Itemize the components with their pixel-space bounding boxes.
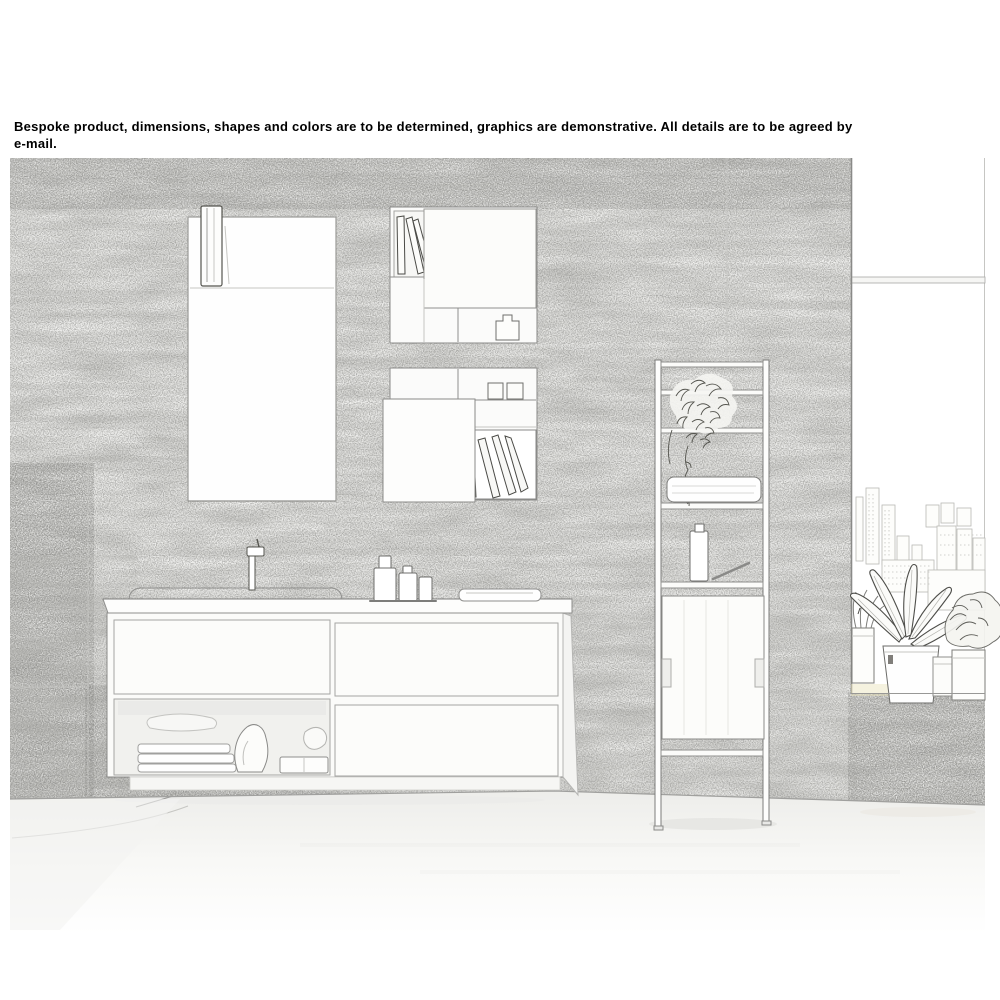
drawer-top-right (335, 623, 558, 696)
big-plant-pot (883, 646, 939, 703)
window-mullion (851, 277, 985, 283)
crumpled-towel-2 (304, 727, 327, 749)
box-shelf-lower (383, 368, 537, 502)
plants-floor-shadow (860, 807, 976, 817)
shelf-upper-door (424, 209, 536, 308)
open-shelf (114, 699, 330, 775)
drawer-bottom-right (335, 705, 558, 776)
listing-image: Bespoke product, dimensions, shapes and … (0, 0, 1000, 1000)
shelf-lower-box-2 (507, 383, 523, 399)
panel-notch-left (662, 659, 671, 687)
ladder-foot-right (762, 821, 771, 825)
ladder-towel (667, 477, 761, 502)
shelf-box (280, 757, 328, 773)
wall-mirror (188, 200, 336, 501)
panel-notch-right (755, 659, 764, 687)
counter-tray (459, 589, 541, 601)
box-shelf-upper (390, 207, 537, 343)
ladder-floor-shadow (649, 818, 777, 830)
shelf-lower-box-1 (488, 383, 503, 399)
plinth (130, 777, 560, 790)
open-shelf-shadow (118, 701, 326, 715)
drawer-top-left (114, 620, 330, 694)
window-city-view (850, 158, 1000, 706)
floor (10, 789, 985, 934)
ladder-foot-left (654, 826, 663, 830)
plant-middle-pot (933, 657, 953, 696)
mirror-towel (201, 200, 222, 286)
ladder-panel (662, 596, 764, 739)
shelf-lower-door (383, 399, 475, 502)
cabinet (107, 613, 578, 795)
sketch-scene (0, 0, 1000, 1000)
